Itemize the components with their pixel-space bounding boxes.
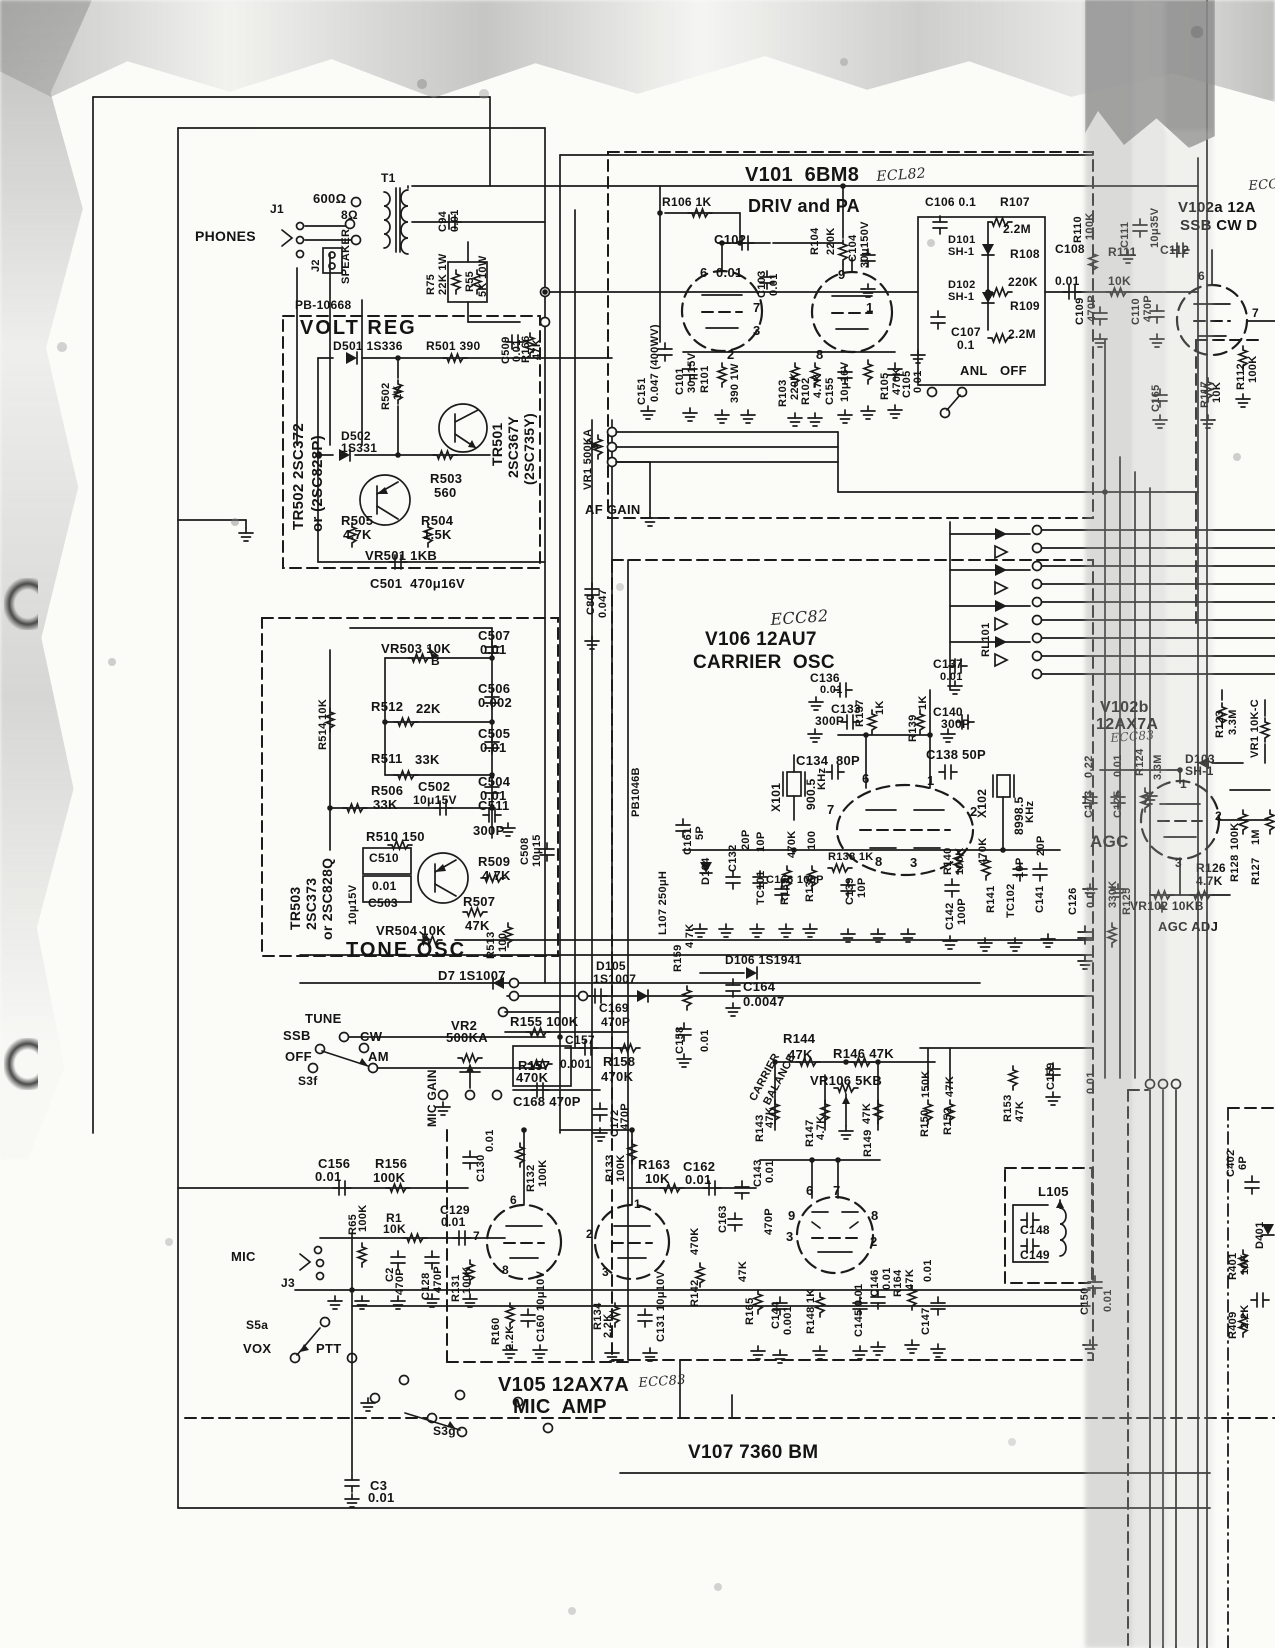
component-label: C138 <box>926 748 958 761</box>
component-label: J2 <box>311 259 322 272</box>
component-label: 0.01 <box>913 370 924 393</box>
component-label: 33K <box>415 753 440 766</box>
component-label: C109 <box>1075 298 1086 326</box>
section-title-v102a: V102a 12A <box>1178 200 1256 215</box>
component-label: 0.01 <box>685 1173 712 1186</box>
component-label: X102 <box>976 789 988 818</box>
component-label: ECC83 <box>638 1374 686 1390</box>
label-af-gain: AF GAIN <box>585 503 641 516</box>
component-label: R501 390 <box>426 340 480 352</box>
component-label: R148 1K <box>806 1288 817 1334</box>
component-label: 10K <box>318 699 329 720</box>
component-label: KHz <box>1025 801 1036 823</box>
component-label: 100K <box>462 1267 473 1295</box>
component-label: C143 <box>753 1160 764 1188</box>
component-label: C111 <box>1120 222 1131 248</box>
component-label: TC102 <box>1006 883 1017 918</box>
component-label: 1 <box>927 774 935 787</box>
component-label: 2SC373 <box>304 878 318 930</box>
component-label: 10μ15 <box>532 834 543 867</box>
component-label: 22K 1W <box>438 253 449 295</box>
component-label: R110 <box>1073 216 1084 243</box>
component-label: 300P <box>473 824 505 837</box>
component-label: 3.3M <box>1153 754 1164 780</box>
component-label: TUNE <box>305 1012 342 1025</box>
component-label: ECC83 <box>1110 729 1155 744</box>
component-label: 8 <box>502 1264 509 1276</box>
label-agc: AGC <box>1090 833 1129 850</box>
component-label: C145 0.01 <box>854 1284 865 1337</box>
component-label: L105 <box>1038 1185 1069 1198</box>
component-label: 2.2K <box>505 1326 516 1350</box>
label-ptt: PTT <box>316 1342 341 1355</box>
component-label: C501 470μ16V <box>370 577 465 590</box>
component-label: D106 1S1941 <box>725 954 802 966</box>
component-label: CW <box>360 1030 382 1043</box>
component-label: R101 <box>700 366 711 394</box>
component-label: 30μ150V <box>860 221 871 268</box>
component-label: R163 <box>638 1158 670 1171</box>
component-label: 47K <box>765 1107 776 1128</box>
component-label: C131 10μ10V <box>656 1271 667 1342</box>
component-label: R506 <box>371 784 403 797</box>
component-label: C505 <box>478 727 510 740</box>
label-mic-gain: MIC GAIN <box>426 1069 438 1127</box>
component-label: R165 <box>745 1298 756 1326</box>
component-label: C508 <box>520 838 531 866</box>
component-label: 2.2M <box>1003 223 1031 235</box>
component-label: C165 <box>1151 385 1162 413</box>
component-label: 1M <box>1251 829 1262 845</box>
component-label: 7 <box>753 301 761 314</box>
component-label: R125 <box>1122 888 1133 916</box>
component-label: 2 <box>970 805 978 818</box>
label-phones: PHONES <box>195 229 256 243</box>
component-label: VR1 500KA <box>583 429 594 490</box>
component-label: SSB CW D <box>1180 218 1257 233</box>
component-label: SH-1 <box>948 292 974 303</box>
label-anl: ANL <box>960 364 988 377</box>
component-label: 600Ω <box>313 192 346 205</box>
component-label: 150K <box>921 1071 932 1099</box>
component-label: L107 250μH <box>658 871 669 935</box>
component-label: 0.01 <box>441 1216 466 1228</box>
component-label: OFF <box>285 1050 312 1063</box>
component-label: C173 <box>1084 791 1095 819</box>
component-label: 300P <box>815 715 844 727</box>
component-label: R107 <box>1000 196 1030 208</box>
component-label: R514 <box>318 723 329 751</box>
component-label: C158 <box>675 1027 686 1055</box>
component-label: C132 <box>728 845 739 873</box>
component-label: 47K <box>862 1103 873 1124</box>
component-label: R511 <box>371 752 403 765</box>
component-label: C503 <box>368 897 398 909</box>
component-label: 470K <box>516 1071 548 1084</box>
component-label: ECC <box>1248 178 1275 193</box>
component-label: C502 <box>418 780 450 793</box>
component-label: 0.01 <box>480 741 507 754</box>
section-title-v107: V107 7360 BM <box>688 1443 818 1462</box>
component-label: 470P <box>433 1266 444 1293</box>
component-label: OFF <box>1000 364 1027 377</box>
component-label: 0.22 <box>1084 755 1095 778</box>
component-label: 10K <box>645 1172 670 1185</box>
component-label: 0.01 <box>1103 1289 1114 1312</box>
component-label: 10K <box>383 1223 406 1235</box>
component-label: 0.047 (400WV) <box>650 324 661 402</box>
component-label: R401 <box>1228 1253 1239 1281</box>
component-label: R124 <box>1135 749 1146 777</box>
component-label: R127 <box>1251 858 1262 886</box>
component-label: 6 <box>806 1184 814 1197</box>
component-label: 470P <box>764 1208 775 1235</box>
component-label: T1 <box>381 172 396 184</box>
component-label: 3 <box>786 1230 794 1243</box>
component-label: 0.01 <box>1086 885 1097 908</box>
component-label: ECL82 <box>876 167 926 184</box>
component-label: SSB <box>283 1029 311 1042</box>
component-label: 470P <box>601 1016 630 1028</box>
component-label: 2 <box>1215 810 1222 822</box>
component-label: 100K <box>1230 823 1241 851</box>
component-label: C108 <box>1055 243 1085 255</box>
component-label: C128 <box>421 1273 432 1301</box>
component-label: R102 <box>801 378 812 406</box>
component-label: 3 <box>753 324 761 337</box>
component-label: 1 <box>1180 778 1187 790</box>
component-label: 4.7K <box>813 374 824 398</box>
component-label: C506 <box>478 682 510 695</box>
component-label: 9 <box>788 1209 796 1222</box>
component-label: R509 <box>478 855 510 868</box>
component-label: 6 <box>700 266 708 279</box>
component-label: D401 <box>1255 1222 1266 1250</box>
component-label: R507 <box>463 895 495 908</box>
component-label: R164 <box>893 1270 904 1298</box>
component-label: R137 <box>855 700 866 728</box>
component-label: C151 <box>637 378 648 406</box>
component-label: 100K <box>1085 213 1096 241</box>
component-label: R510 150 <box>366 830 425 843</box>
component-label: C149 <box>1020 1249 1050 1261</box>
component-label: R160 <box>491 1318 502 1346</box>
component-label: 4.7K <box>1196 875 1223 887</box>
component-label: TR503 <box>288 886 302 930</box>
component-label: 470P <box>1143 295 1154 322</box>
component-label: 100 <box>807 831 818 850</box>
component-label: 22K <box>416 702 441 715</box>
section-title-v106: V106 12AU7 <box>705 630 817 649</box>
component-label: VR501 1KB <box>365 549 437 562</box>
component-label: R155 100K <box>510 1015 578 1028</box>
component-label: C139 <box>845 878 856 906</box>
component-label: R152 <box>943 1108 954 1136</box>
component-label: 0.002 <box>478 696 512 709</box>
component-label: C504 <box>478 775 510 788</box>
component-label: C136 <box>810 672 840 684</box>
component-label: 3 <box>1175 857 1182 869</box>
component-label: J3 <box>281 1277 295 1289</box>
component-label: S3g <box>433 1425 456 1437</box>
component-label: R149 <box>863 1130 874 1158</box>
component-label: VR106 5KB <box>810 1074 882 1087</box>
component-label: 0.01 <box>940 672 963 683</box>
component-label: C107 <box>951 326 981 338</box>
component-label: R109 <box>1010 300 1040 312</box>
component-label: 8 <box>816 348 824 361</box>
component-label: SH-1 <box>1185 765 1214 777</box>
component-label: R144 <box>783 1032 815 1045</box>
component-label: R153 <box>1003 1095 1014 1123</box>
component-label: 1K <box>875 700 886 715</box>
component-label: R150 <box>920 1110 931 1138</box>
component-label: 47K <box>905 1269 916 1290</box>
component-label: C510 <box>369 852 399 864</box>
component-label: 0.001 <box>783 1306 794 1335</box>
component-label: 0.01 <box>716 266 743 279</box>
component-label: R146 47K <box>833 1047 894 1060</box>
component-label: C402 <box>1226 1150 1237 1178</box>
component-label: 47K <box>945 1076 956 1097</box>
component-label: 330K <box>1108 881 1119 909</box>
component-label: J1 <box>270 203 284 215</box>
component-label: 1S1007 <box>593 973 636 985</box>
component-label: 0.01 <box>315 1170 342 1183</box>
component-label: 47K <box>532 339 543 360</box>
component-label: 6 <box>862 772 870 785</box>
component-label: 100K <box>373 1171 405 1184</box>
component-label: R112 <box>1236 363 1247 390</box>
component-label: 1K <box>918 695 929 710</box>
component-label: 2SC367Y <box>506 416 520 478</box>
component-label: 100K <box>358 1205 369 1233</box>
component-label: 5P <box>695 826 706 840</box>
section-title-volt-reg: VOLT REG <box>300 318 417 338</box>
component-label: 10P <box>857 878 868 898</box>
component-label: D101 <box>948 235 976 246</box>
component-label: 47K <box>788 1048 813 1061</box>
component-label: R128 <box>1230 855 1241 883</box>
component-label: D501 1S336 <box>333 340 403 352</box>
label-vox: VOX <box>243 1342 271 1355</box>
component-label: 3.3M <box>1228 709 1239 735</box>
component-label: 0.01 <box>765 1160 776 1183</box>
component-label: R117 <box>1200 381 1211 408</box>
component-label: C130 <box>476 1155 487 1183</box>
component-label: C157 <box>565 1034 595 1046</box>
component-label: 0.001 <box>560 1058 592 1070</box>
component-label: C80 <box>586 594 597 615</box>
component-label: 470K <box>601 1070 633 1083</box>
schematic-page: PHONESJ1J2SPEAKER600Ω8ΩT1C940.01R7522K 1… <box>0 0 1275 1648</box>
component-label: SH-1 <box>948 247 974 258</box>
component-label: R159 <box>673 945 684 973</box>
component-label: 100P <box>957 898 968 925</box>
component-label: R123 <box>1215 711 1226 739</box>
component-label: C166 100P <box>766 875 824 886</box>
component-label: 10K <box>1212 382 1223 403</box>
component-label: 8 <box>875 855 883 868</box>
component-label: 10P <box>756 832 767 852</box>
component-label: AM <box>368 1050 389 1063</box>
component-label: C144 <box>771 1302 782 1330</box>
component-label: C110 <box>1131 298 1142 325</box>
component-label: 2.2K <box>603 1314 614 1338</box>
component-label: R108 <box>1010 248 1040 260</box>
component-label: 30μ15V <box>687 353 698 393</box>
component-label: 470P <box>620 1103 631 1130</box>
component-label: 560 <box>434 486 457 499</box>
component-label: R139 <box>908 715 919 743</box>
component-label: C168 470P <box>513 1095 581 1108</box>
component-label: R105 <box>880 373 891 401</box>
component-label: 0.01 <box>820 685 843 696</box>
component-label: 10P <box>1015 858 1026 878</box>
component-label: 0.01 <box>368 1491 395 1504</box>
component-label: 470P <box>1087 295 1098 322</box>
component-label: C94 <box>438 211 449 232</box>
component-label: S5a <box>246 1319 268 1331</box>
component-label: R141 <box>986 886 997 914</box>
component-label: D104 <box>701 858 712 886</box>
component-label: 4.7K <box>816 1116 827 1140</box>
component-label: 470K <box>978 838 989 866</box>
component-label: 2.2M <box>1008 328 1036 340</box>
component-label: C106 0.1 <box>925 196 976 208</box>
component-label: 2.2K <box>1240 1305 1251 1329</box>
component-label: 7 <box>473 1230 480 1242</box>
component-label: 7 <box>1252 307 1259 319</box>
component-label: 10μ15V <box>413 794 457 806</box>
component-label: C160 10μ10V <box>536 1271 547 1342</box>
component-label: 6 <box>1198 270 1205 282</box>
component-label: R142 <box>690 1280 701 1308</box>
component-label: TR502 2SC372 <box>291 423 306 530</box>
component-label: 100K <box>538 1160 549 1188</box>
component-label: PB1046B <box>631 767 642 817</box>
component-label: C507 <box>478 629 510 642</box>
component-label: 0.0047 <box>743 995 785 1008</box>
component-label: R75 <box>426 274 437 295</box>
component-label: 0.01 <box>372 880 397 892</box>
component-label: R502 <box>381 383 392 411</box>
component-label: 390 1W <box>730 363 741 403</box>
component-label: VR102 10KB <box>1130 900 1204 912</box>
component-label: 10μ35V <box>1150 208 1161 248</box>
component-label: 100K <box>1248 356 1259 384</box>
component-label: VR1 10K-C <box>1250 699 1261 758</box>
component-label: ECC82 <box>770 608 829 628</box>
component-label: 0.01 <box>450 209 461 232</box>
component-label: 9 <box>838 268 846 281</box>
component-label: C102 <box>714 233 746 246</box>
component-label: 470P <box>395 1268 406 1295</box>
component-label: R512 <box>371 700 403 713</box>
component-label: C155 <box>825 378 836 406</box>
component-label: 4.7K <box>685 924 696 948</box>
component-label: C147 <box>921 1308 932 1336</box>
section-title-v105: V105 12AX7A <box>498 1375 629 1395</box>
component-label: 0.047 <box>598 589 609 618</box>
component-label: 0.01 <box>1113 754 1124 777</box>
component-label: 1S331 <box>341 442 377 454</box>
component-label: C125 <box>1113 791 1124 819</box>
component-label: 20P <box>1036 836 1047 856</box>
component-label: R505 <box>341 514 373 527</box>
component-label: 47K <box>738 1261 749 1282</box>
component-label: R409 <box>1228 1312 1239 1340</box>
component-label: 10μ16V <box>840 362 851 402</box>
component-label: C101 <box>675 368 686 396</box>
component-label: C142 <box>945 903 956 931</box>
component-label: 80P <box>836 754 860 767</box>
component-label: 50P <box>962 748 986 761</box>
component-label: 10K <box>1240 1254 1251 1275</box>
label-agc-adj: AGC ADJ <box>1158 920 1218 933</box>
component-label: 0.01 <box>485 1129 496 1152</box>
component-label: R503 <box>430 472 462 485</box>
component-label: 100K <box>616 1155 627 1183</box>
component-label: PB-10668 <box>295 299 351 311</box>
component-label: 0.01 <box>1086 1071 1097 1094</box>
component-label: 1K <box>393 385 404 400</box>
component-label: 3 <box>602 1266 609 1278</box>
component-label: R158 <box>603 1055 635 1068</box>
component-label: 2 <box>870 1235 878 1248</box>
label-layer: PHONESJ1J2SPEAKER600Ω8ΩT1C940.01R7522K 1… <box>0 0 1275 1648</box>
section-title-v102b: V102b <box>1100 700 1149 716</box>
component-label: R156 <box>375 1157 407 1170</box>
component-label: 0.1 <box>957 339 975 351</box>
component-label: C169 <box>599 1002 629 1014</box>
component-label: C137 <box>933 658 963 670</box>
component-label: C146 <box>870 1270 881 1298</box>
component-label: R513 <box>486 932 497 960</box>
component-label: R132 <box>526 1165 537 1193</box>
component-label: 20P <box>741 830 752 850</box>
component-label: X101 <box>770 783 782 812</box>
component-label: C164 <box>743 980 775 993</box>
component-label: R138 1K <box>828 852 874 863</box>
component-label: C104 <box>848 235 859 263</box>
section-title-driv-pa: DRIV and PA <box>748 197 860 215</box>
component-label: R126 <box>1196 862 1226 874</box>
component-label: (2SC735Y) <box>522 413 536 485</box>
component-label: 7 <box>827 803 835 816</box>
component-label: or 2SC828Q <box>320 858 334 940</box>
component-label: KHz <box>817 768 828 790</box>
component-label: CARRIER OSC <box>693 653 835 672</box>
component-label: R106 1K <box>662 196 711 208</box>
component-label: C150 <box>1080 1288 1091 1316</box>
component-label: 7 <box>833 1184 841 1197</box>
component-label: C159 <box>1046 1063 1057 1091</box>
component-label: R55 <box>465 271 476 292</box>
component-label: 4.7K <box>343 528 372 541</box>
component-label: 10K <box>1108 275 1131 287</box>
component-label: B <box>431 655 440 667</box>
component-label: R140 <box>943 848 954 876</box>
component-label: D102 <box>948 280 976 291</box>
component-label: TR501 <box>490 422 504 466</box>
component-label: R104 <box>810 228 821 256</box>
component-label: 100K <box>955 848 966 876</box>
component-label: 47K <box>465 919 490 932</box>
component-label: C161 <box>683 828 694 856</box>
component-label: SPEAKER <box>341 229 352 284</box>
component-label: 1 <box>634 1198 641 1210</box>
